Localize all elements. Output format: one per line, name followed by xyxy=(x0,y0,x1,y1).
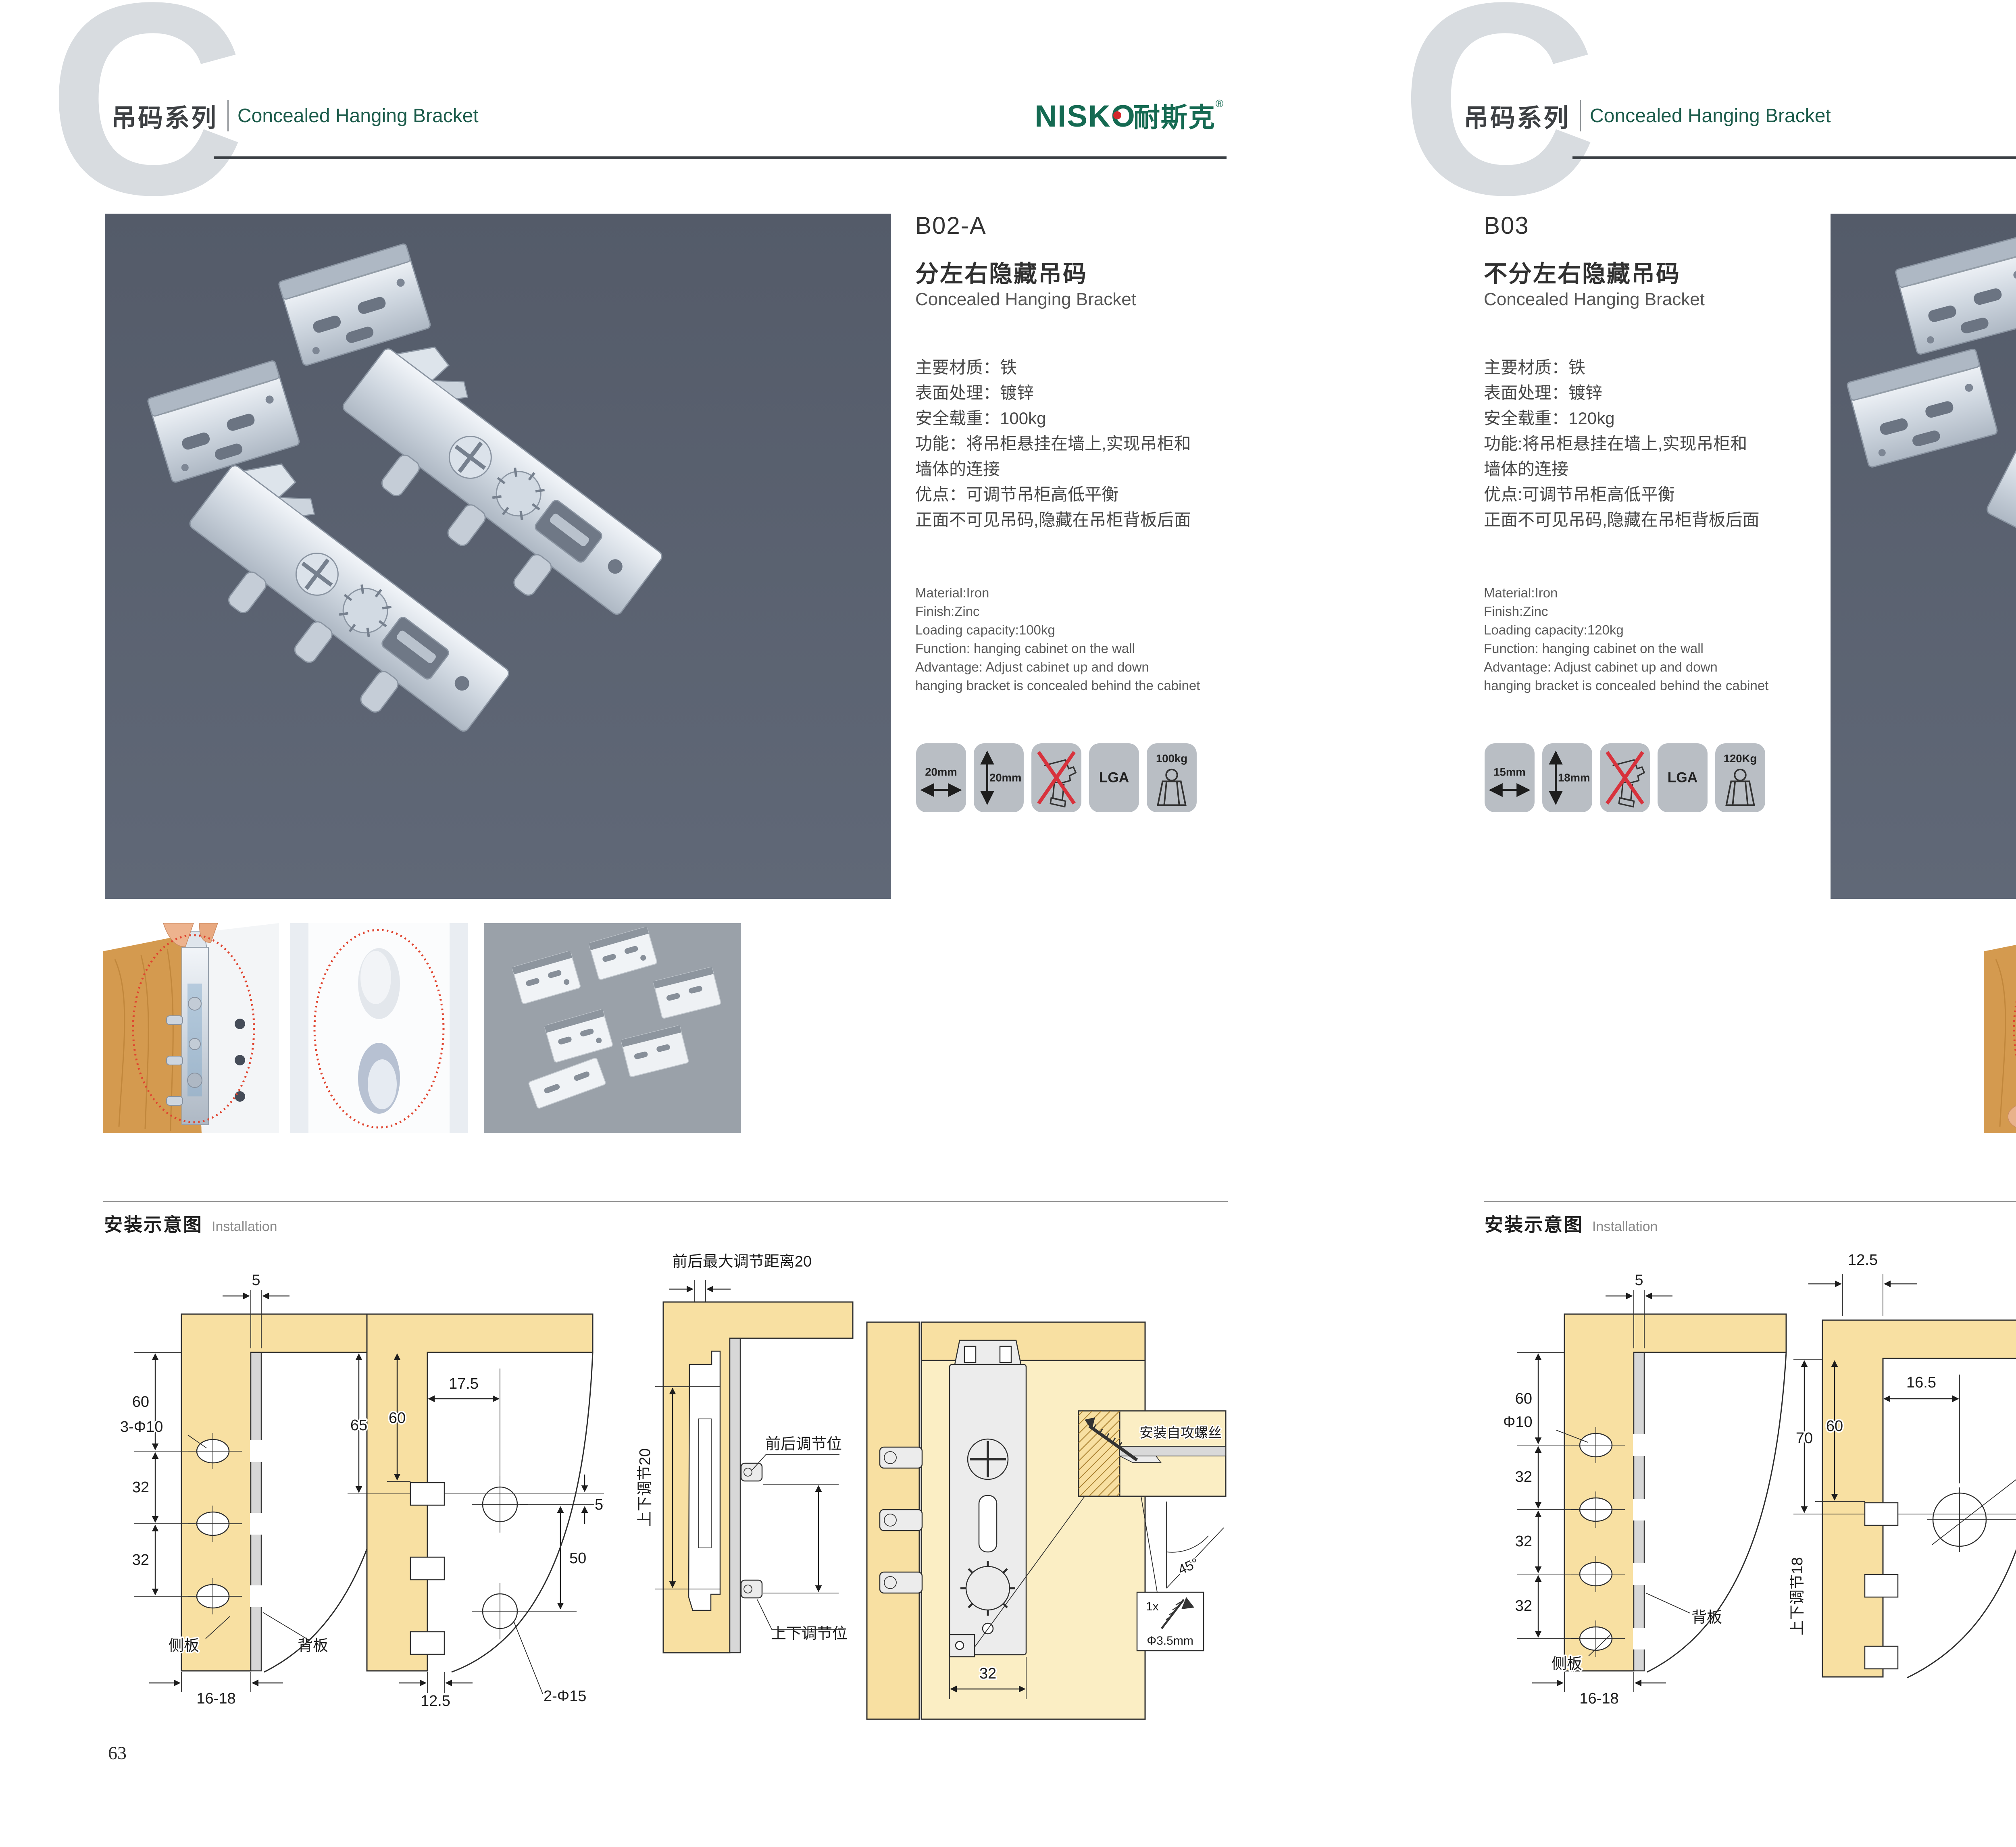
dim-label: 16-18 xyxy=(196,1690,235,1707)
specs-cn: 主要材质：铁 表面处理：镀锌 安全载重：100kg 功能：将吊柜悬挂在墙上,实现… xyxy=(915,355,1191,532)
spec-line: Function: hanging cabinet on the wall xyxy=(915,639,1200,658)
badge-label: 20mm xyxy=(925,766,957,778)
spec-line: 表面处理：镀锌 xyxy=(915,380,1191,406)
adjust-label: 前后最大调节距离20 xyxy=(672,1253,812,1270)
dim-label: 16.5 xyxy=(1906,1374,1936,1391)
spec-line: 正面不可见吊码,隐藏在吊柜背板后面 xyxy=(915,507,1191,532)
badge-load-capacity: 120Kg xyxy=(1714,743,1766,813)
adjust-label: 上下调节18 xyxy=(1790,1557,1806,1635)
dim-label: 60 xyxy=(1515,1390,1532,1407)
spec-line: Finish:Zinc xyxy=(1484,602,1768,621)
thumb-installed xyxy=(1984,923,2016,1133)
screw-spec: 1x Φ3.5mm xyxy=(1137,1592,1204,1651)
screw-detail: 安装自攻螺丝 xyxy=(1079,1411,1226,1496)
installation-title: 安装示意图Installation xyxy=(104,1210,277,1237)
hole-callout: 2-Φ15 xyxy=(544,1688,586,1705)
product-title-cn: 分左右隐藏吊码 xyxy=(915,255,1087,289)
product-code: B03 xyxy=(1484,212,1529,239)
dim-label: 32 xyxy=(1515,1533,1532,1550)
badge-label: 20mm xyxy=(989,771,1022,784)
install-diagram-adjustment: 前后最大调节距离20 上下调节20 前后调节位 上下调节位 xyxy=(629,1246,855,1697)
badge-no-drill xyxy=(1031,743,1082,813)
adjust-label: 上下调节位 xyxy=(771,1625,848,1642)
spec-line: Material:Iron xyxy=(915,584,1200,602)
spec-line: 功能：将吊柜悬挂在墙上,实现吊柜和 xyxy=(915,431,1191,456)
spec-line: Loading capacity:100kg xyxy=(915,621,1200,639)
badge-lga: LGA xyxy=(1088,743,1140,813)
spec-line: 正面不可见吊码,隐藏在吊柜背板后面 xyxy=(1484,507,1760,532)
feature-badges: 15mm 18mm LGA 120Kg xyxy=(1484,743,1766,813)
dim-label: 16-18 xyxy=(1579,1690,1618,1707)
series-title-en: Concealed Hanging Bracket xyxy=(237,105,479,127)
spec-line: 墙体的连接 xyxy=(915,456,1191,482)
dim-label: 5 xyxy=(252,1272,260,1289)
spec-line: hanging bracket is concealed behind the … xyxy=(1484,676,1768,695)
brand-logo-dot-icon xyxy=(1113,111,1121,119)
specs-en: Material:Iron Finish:Zinc Loading capaci… xyxy=(1484,584,1768,695)
spec-line: 表面处理：镀锌 xyxy=(1484,380,1760,406)
spec-line: 主要材质：铁 xyxy=(915,355,1191,380)
panel-label: 侧板 xyxy=(169,1637,199,1654)
screw-qty: 1x xyxy=(1146,1600,1159,1613)
feature-badges: 20mm 20mm LGA 100kg xyxy=(915,743,1198,813)
dim-label: 32 xyxy=(132,1479,149,1496)
spec-line: Loading capacity:120kg xyxy=(1484,621,1768,639)
dim-label: 12.5 xyxy=(1848,1252,1878,1269)
dim-label: 65 xyxy=(350,1417,367,1434)
catalog-spread: C 吊码系列 Concealed Hanging Bracket NISKO耐斯… xyxy=(0,0,2016,1847)
badge-label: 100kg xyxy=(1156,752,1187,765)
badge-load-capacity: 100kg xyxy=(1146,743,1198,813)
dim-label: 5 xyxy=(595,1496,603,1513)
product-title-en: Concealed Hanging Bracket xyxy=(915,289,1136,310)
dim-label: 60 xyxy=(1826,1418,1843,1435)
dim-label: 12.5 xyxy=(421,1693,450,1709)
spec-line: Advantage: Adjust cabinet up and down xyxy=(1484,658,1768,676)
dim-label: 60 xyxy=(132,1394,149,1410)
series-title-cn: 吊码系列 xyxy=(111,98,218,134)
badge-label: 15mm xyxy=(1493,766,1526,778)
hole-callout: 3-Φ10 xyxy=(120,1419,163,1435)
wood-panel xyxy=(1984,933,2016,1133)
install-diagram-side-panel: 5 60 32 32 32 Φ10 16-18 侧板 背板 xyxy=(1492,1266,1798,1709)
brand-logo-cn: 耐斯克 xyxy=(1133,102,1216,132)
screw-label: 安装自攻螺丝 xyxy=(1139,1425,1222,1441)
badge-horizontal-adjust: 20mm xyxy=(915,743,967,813)
spec-line: 优点:可调节吊柜高低平衡 xyxy=(1484,482,1760,507)
installation-title-en: Installation xyxy=(1592,1219,1658,1234)
page-number: 63 xyxy=(108,1742,127,1764)
dim-label: 32 xyxy=(979,1665,996,1682)
spec-line: hanging bracket is concealed behind the … xyxy=(915,676,1200,695)
installation-title-cn: 安装示意图 xyxy=(1485,1214,1583,1235)
dim-label: 32 xyxy=(1515,1468,1532,1485)
spec-line: Finish:Zinc xyxy=(915,602,1200,621)
installation-title: 安装示意图Installation xyxy=(1485,1210,1658,1237)
header-rule xyxy=(214,156,1227,159)
specs-cn: 主要材质：铁 表面处理：镀锌 安全载重：120kg 功能:将吊柜悬挂在墙上,实现… xyxy=(1484,355,1760,532)
thumb-installed xyxy=(103,923,279,1133)
dim-label: 32 xyxy=(1515,1597,1532,1614)
header-divider xyxy=(227,100,229,131)
brand-logo: NISKO耐斯克® xyxy=(1035,96,1223,135)
badge-no-drill xyxy=(1599,743,1651,813)
photo-background xyxy=(105,214,891,899)
dim-label: 5 xyxy=(1635,1272,1643,1289)
product-code: B02-A xyxy=(915,212,987,239)
series-title-cn: 吊码系列 xyxy=(1464,98,1570,134)
adjust-label: 上下调节20 xyxy=(637,1448,654,1527)
thumb-back-panel xyxy=(290,923,468,1133)
badge-label: 18mm xyxy=(1558,771,1590,784)
product-title-en: Concealed Hanging Bracket xyxy=(1484,289,1705,310)
product-title-cn: 不分左右隐藏吊码 xyxy=(1484,255,1681,289)
spec-line: Advantage: Adjust cabinet up and down xyxy=(915,658,1200,676)
badge-label: LGA xyxy=(1668,770,1698,785)
section-rule xyxy=(103,1201,1228,1202)
dim-label: 70 xyxy=(1796,1430,1813,1447)
product-photo xyxy=(1831,214,2016,899)
install-diagram-bracket: 32 安装自攻螺丝 45° 1x Φ3.5mm xyxy=(859,1270,1230,1721)
spec-line: Material:Iron xyxy=(1484,584,1768,602)
badge-vertical-adjust: 20mm xyxy=(973,743,1025,813)
badge-lga: LGA xyxy=(1657,743,1708,813)
badge-vertical-adjust: 18mm xyxy=(1541,743,1593,813)
spec-line: 优点：可调节吊柜高低平衡 xyxy=(915,482,1191,507)
thumb-plates xyxy=(484,923,741,1133)
series-header: 吊码系列 Concealed Hanging Bracket xyxy=(1464,98,1831,134)
badge-horizontal-adjust: 15mm xyxy=(1484,743,1535,813)
installation-title-cn: 安装示意图 xyxy=(104,1214,203,1235)
page-left: C 吊码系列 Concealed Hanging Bracket NISKO耐斯… xyxy=(0,0,1352,1847)
dim-label: 32 xyxy=(132,1552,149,1568)
series-title-en: Concealed Hanging Bracket xyxy=(1590,105,1831,127)
product-photo xyxy=(105,214,891,899)
specs-en: Material:Iron Finish:Zinc Loading capaci… xyxy=(915,584,1200,695)
badge-label: 120Kg xyxy=(1724,752,1757,765)
page-right: C 吊码系列 Concealed Hanging Bracket NISKO耐斯… xyxy=(1352,0,2016,1847)
install-diagram-drilling: 65 60 17.5 5 50 2-Φ15 12.5 xyxy=(343,1266,621,1709)
dim-label: 60 xyxy=(389,1410,406,1427)
screw-dia: Φ3.5mm xyxy=(1147,1634,1193,1647)
dim-label: 50 xyxy=(569,1550,586,1567)
spec-line: 功能:将吊柜悬挂在墙上,实现吊柜和 xyxy=(1484,431,1760,456)
series-header: 吊码系列 Concealed Hanging Bracket xyxy=(111,98,479,134)
spec-line: 主要材质：铁 xyxy=(1484,355,1760,380)
spec-line: 安全载重：120kg xyxy=(1484,406,1760,431)
spec-line: Function: hanging cabinet on the wall xyxy=(1484,639,1768,658)
hole-callout: Φ10 xyxy=(1503,1414,1533,1431)
badge-label: LGA xyxy=(1099,770,1129,785)
spec-line: 墙体的连接 xyxy=(1484,456,1760,482)
dim-label: 17.5 xyxy=(449,1375,479,1392)
header-rule xyxy=(1572,156,2016,159)
installation-title-en: Installation xyxy=(212,1219,277,1234)
panel-label: 侧板 xyxy=(1552,1656,1582,1672)
brand-reg-mark: ® xyxy=(1216,98,1223,110)
adjust-label: 前后调节位 xyxy=(765,1436,842,1453)
spec-line: 安全载重：100kg xyxy=(915,406,1191,431)
section-rule xyxy=(1484,1201,2016,1202)
install-diagram-drilling: 12.5 70 60 16.5 Ø 25 10 上下调节18 xyxy=(1790,1242,2016,1713)
header-divider xyxy=(1580,100,1581,131)
